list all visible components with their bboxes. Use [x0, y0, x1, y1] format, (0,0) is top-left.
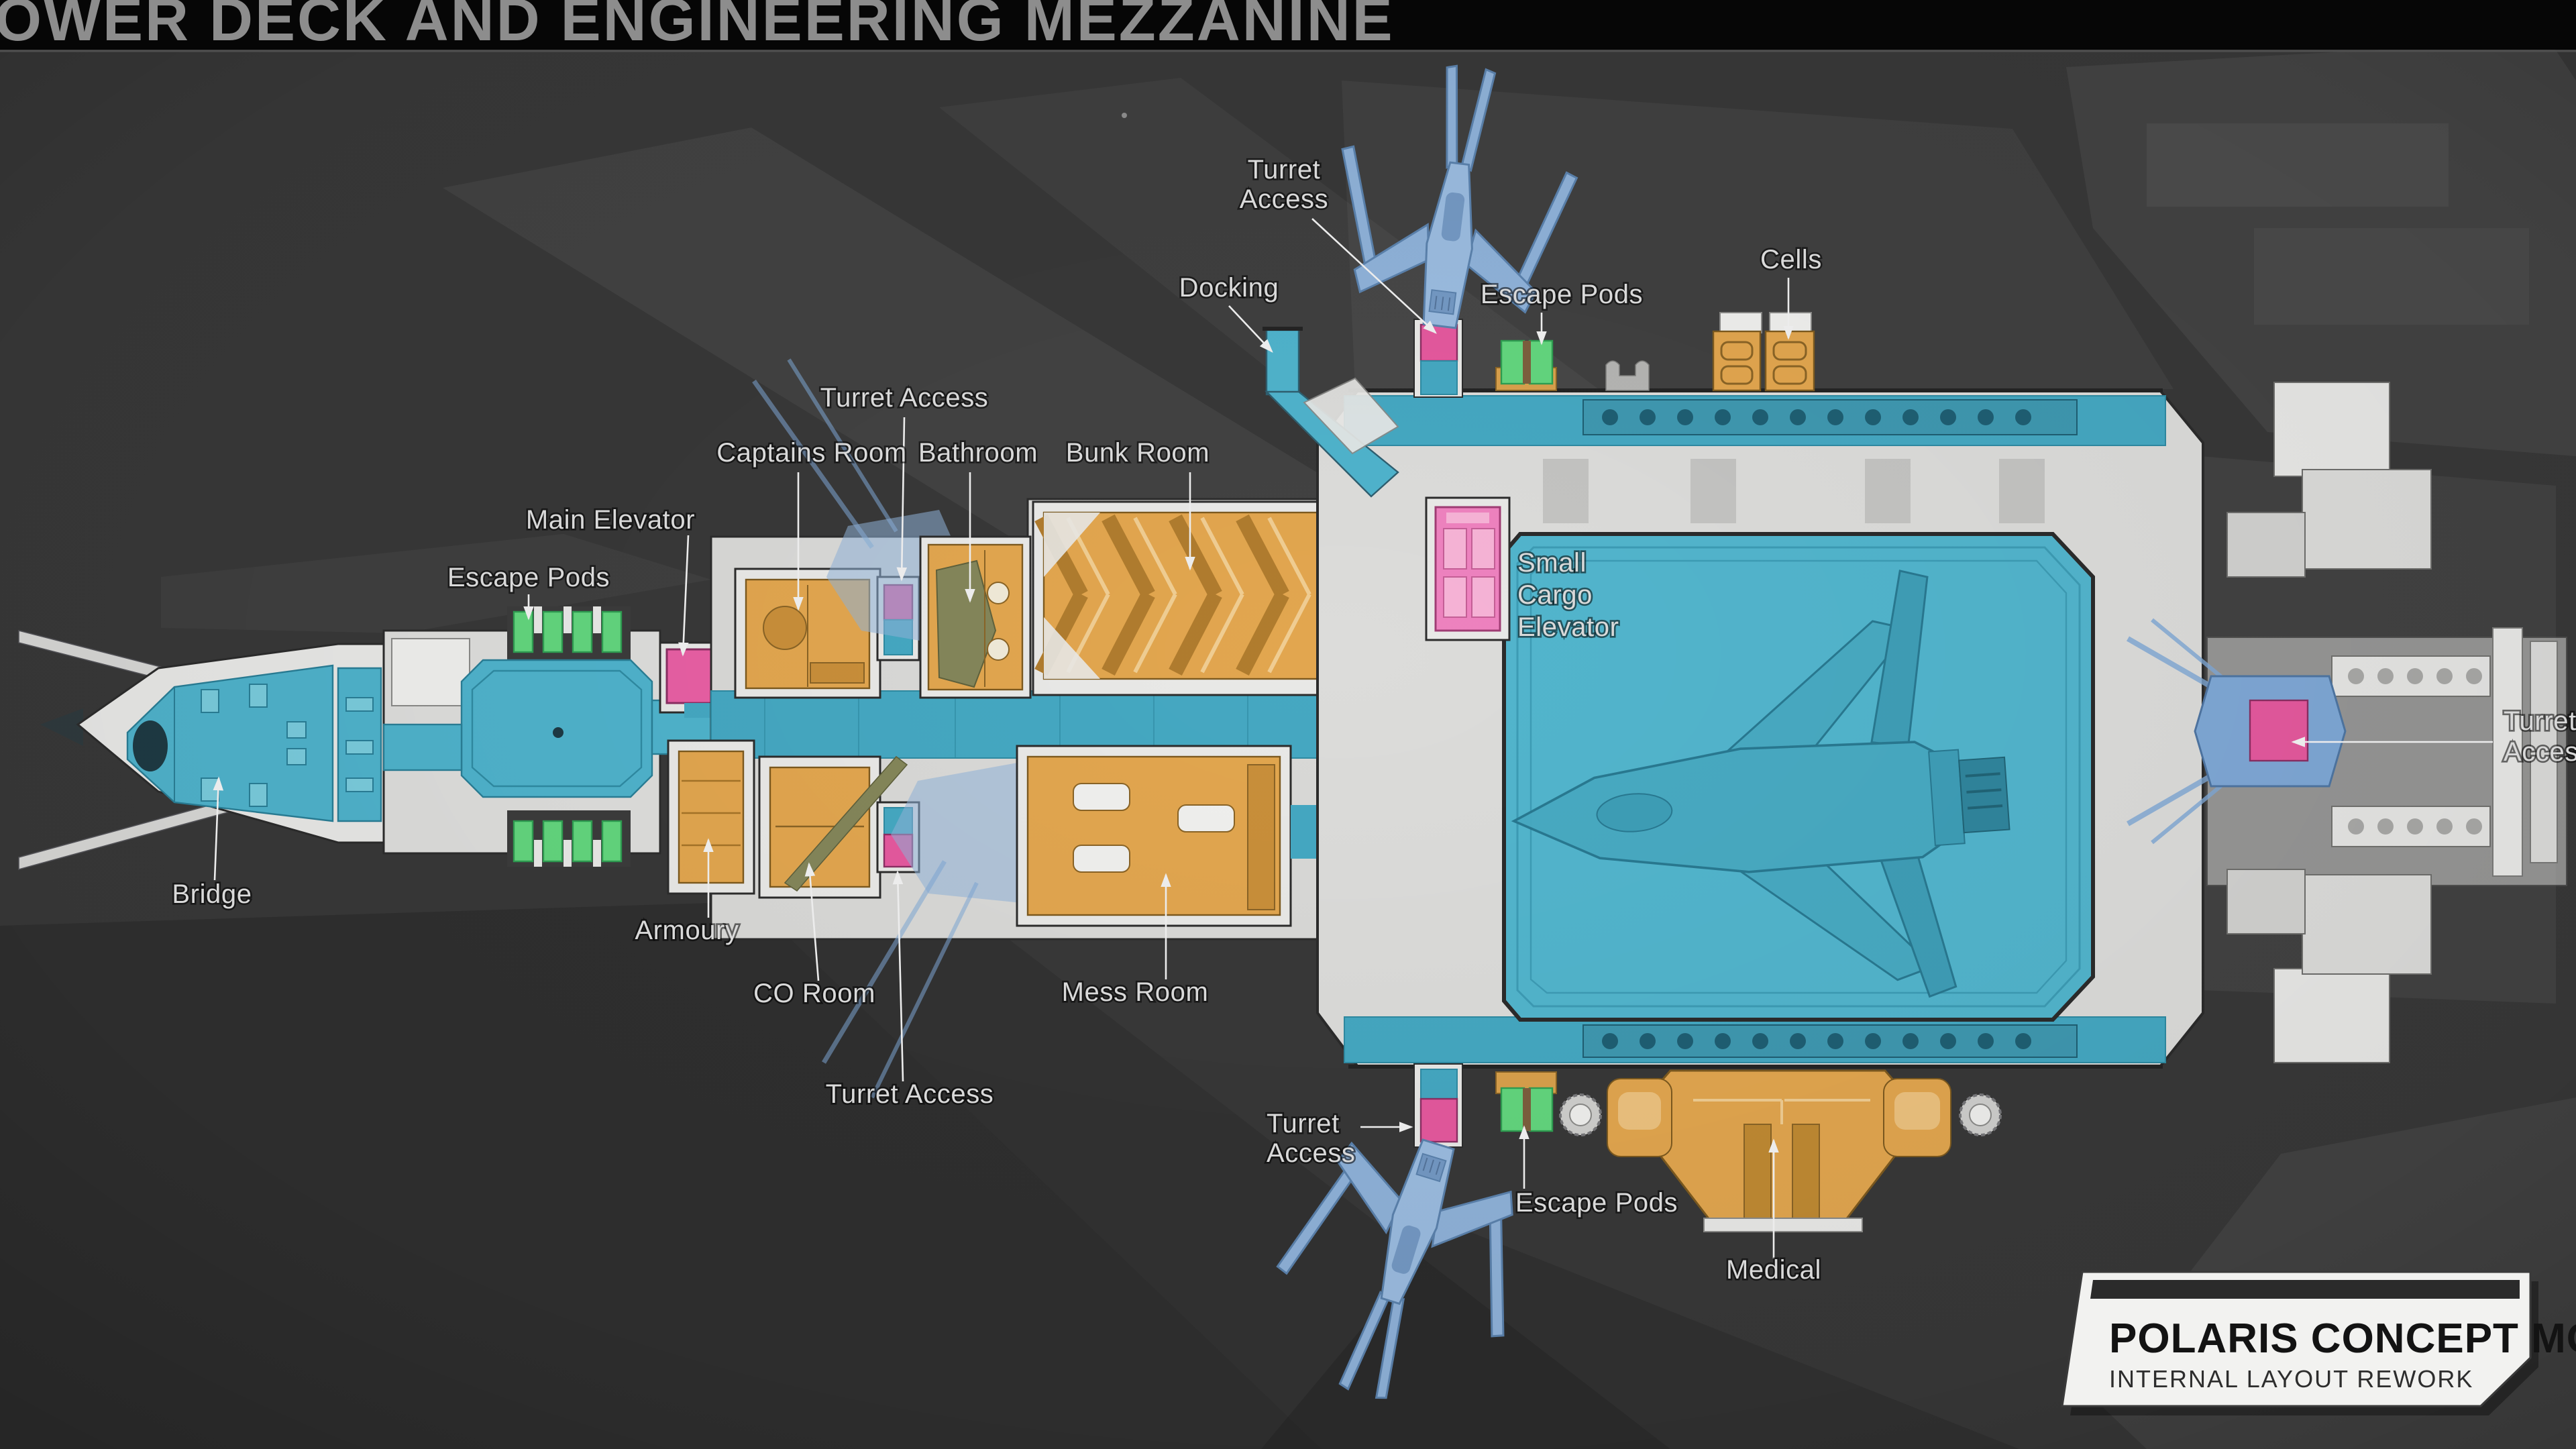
banner-top-stripe	[2090, 1280, 2520, 1299]
svg-text:Access: Access	[1267, 1138, 1356, 1168]
label-small-cargo-elevator: Small	[1517, 548, 1587, 578]
label-main-elevator: Main Elevator	[526, 505, 695, 535]
label-bathroom: Bathroom	[918, 438, 1038, 468]
svg-text:Access: Access	[2504, 737, 2576, 767]
svg-text:Access: Access	[1240, 184, 1329, 214]
label-escape-pods-bottom: Escape Pods	[1515, 1188, 1678, 1218]
label-armoury: Armoury	[635, 916, 739, 945]
vignette	[0, 0, 2576, 1449]
label-captains-room: Captains Room	[716, 438, 906, 468]
label-turret-access-mid: Turret Access	[820, 383, 989, 413]
banner-subtitle: INTERNAL LAYOUT REWORK	[2109, 1365, 2473, 1393]
label-bunk-room: Bunk Room	[1066, 438, 1210, 468]
banner-title: POLARIS CONCEPT MODEL	[2109, 1316, 2576, 1362]
deck-plan-illustration: Turret Access Docking Escape Pods Cells …	[0, 0, 2576, 1449]
label-co-room: CO Room	[753, 979, 875, 1008]
label-turret-access-top: Turret	[1248, 155, 1321, 184]
svg-text:Cargo: Cargo	[1517, 580, 1593, 610]
label-cells: Cells	[1760, 245, 1822, 274]
label-turret-access-right: Turret	[2504, 706, 2576, 736]
top-title-bar: OWER DECK AND ENGINEERING MEZZANINE	[0, 0, 2576, 54]
svg-text:Elevator: Elevator	[1517, 612, 1619, 642]
label-escape-pods-top: Escape Pods	[1481, 280, 1643, 309]
label-turret-access-bottom: Turret Access	[826, 1079, 994, 1109]
label-turret-access-bottom-left: Turret	[1267, 1109, 1340, 1138]
label-escape-pods-left: Escape Pods	[447, 563, 610, 592]
label-medical: Medical	[1726, 1255, 1821, 1285]
banner: POLARIS CONCEPT MODEL INTERNAL LAYOUT RE…	[2062, 1272, 2576, 1415]
label-mess-room: Mess Room	[1062, 977, 1209, 1007]
screenshot-root: Turret Access Docking Escape Pods Cells …	[0, 0, 2576, 1449]
label-bridge: Bridge	[172, 879, 252, 909]
label-docking: Docking	[1179, 273, 1279, 303]
page-title: OWER DECK AND ENGINEERING MEZZANINE	[0, 0, 1395, 54]
